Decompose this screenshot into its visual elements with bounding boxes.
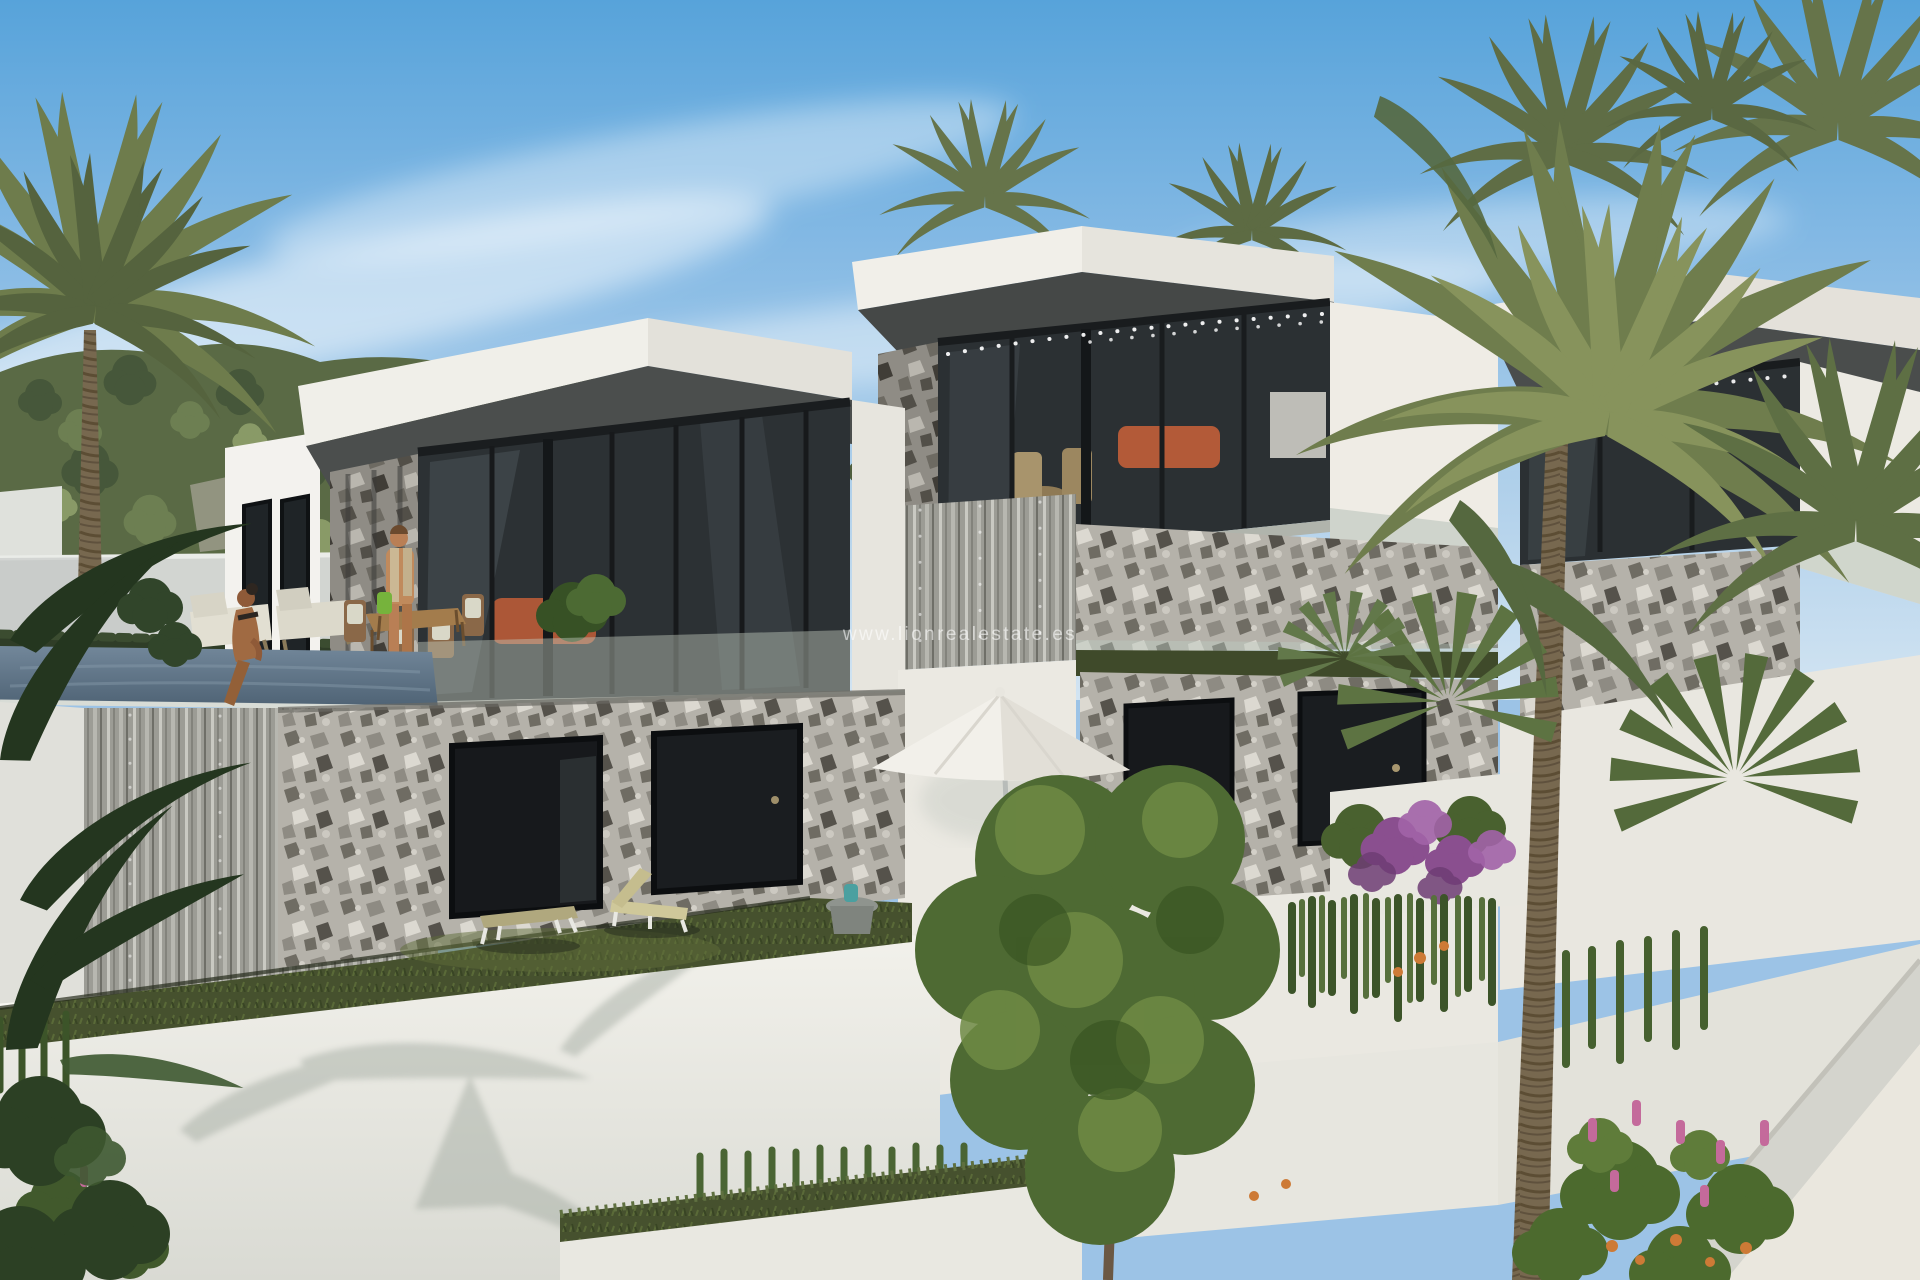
- glass-balustrade-1: [418, 630, 850, 702]
- basement-window-1: [452, 738, 600, 916]
- interior-wall-patch: [1270, 392, 1326, 458]
- waterfall-wall: [898, 494, 1076, 670]
- terracotta-sofa-2: [1118, 426, 1220, 468]
- scene-svg: [0, 0, 1920, 1280]
- villa-render-photo: www.lionrealestate.es: [0, 0, 1920, 1280]
- basement-window-2: [654, 726, 800, 892]
